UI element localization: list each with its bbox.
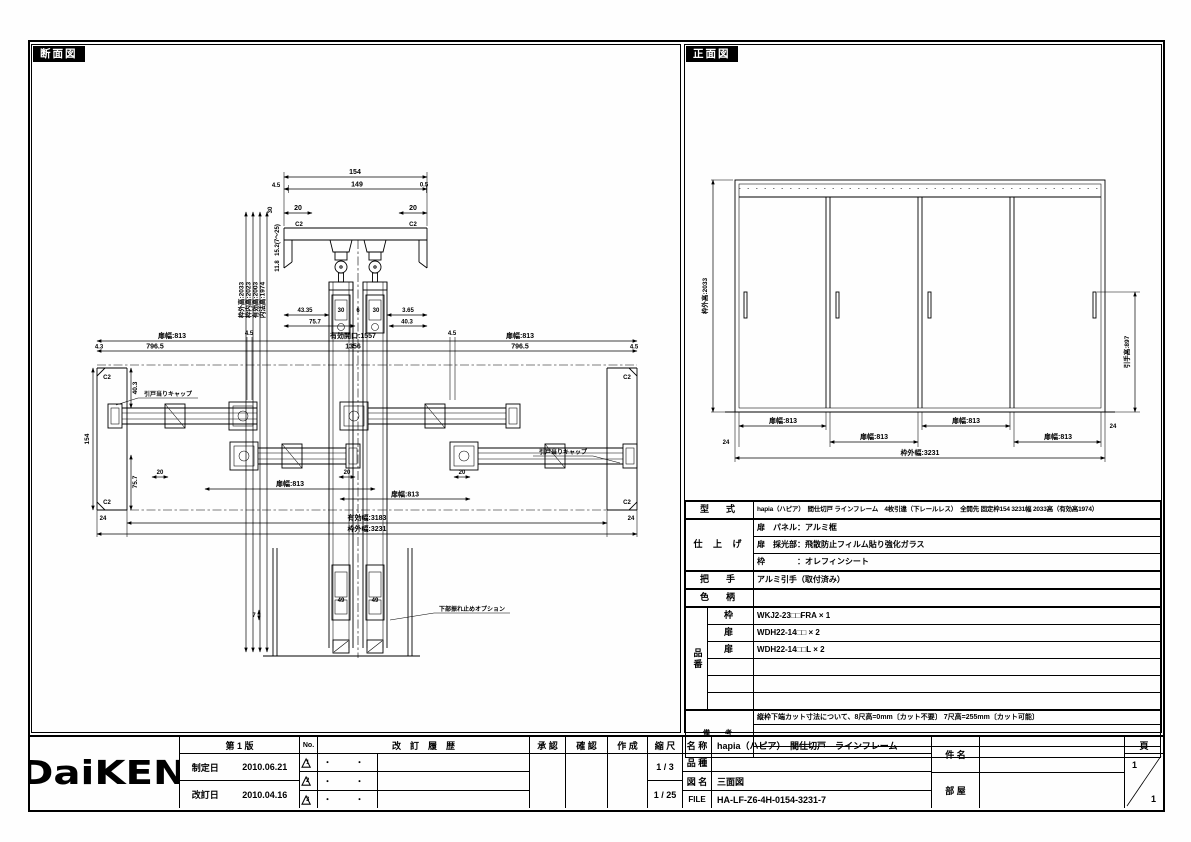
drawing-name-label: 図 名 bbox=[683, 772, 712, 791]
dim-gap: 4.5 bbox=[448, 331, 457, 337]
revision-triangle-icon: 1 bbox=[302, 757, 316, 769]
product-name: hapia（ハピア） 間仕切戸 ラインフレーム bbox=[712, 737, 932, 754]
revision-triangle-icon: 2 bbox=[302, 775, 316, 787]
check-header: 確 認 bbox=[566, 737, 608, 754]
spec-part-code: WDH22-14□□ × 2 bbox=[754, 625, 1161, 642]
dim-30: 30 bbox=[268, 206, 274, 213]
dim-door-width: 扉幅:813 bbox=[768, 416, 797, 425]
drawing-name-value: 三面図 bbox=[712, 772, 932, 791]
revision-date: ・ ・ bbox=[318, 791, 378, 808]
head-jamb-profile bbox=[284, 228, 427, 268]
spec-part-code bbox=[754, 693, 1161, 711]
revision-triangle-icon: 3 bbox=[302, 794, 316, 806]
page-cell: 1 1 bbox=[1125, 754, 1163, 808]
dim-door-width: 扉幅:813 bbox=[1043, 432, 1072, 441]
dim-jamb-40-3: 40.3 bbox=[132, 381, 139, 394]
dim-frame-inner-height: 枠内高:2023 bbox=[244, 282, 253, 319]
front-dimensions: 枠外高:2033 引手高:897 扉幅:813 扉幅:813 24 24 扉幅:… bbox=[700, 180, 1140, 462]
dim-11-8: 11.8 bbox=[275, 260, 281, 272]
dim-door-width: 扉幅:813 bbox=[390, 490, 419, 499]
dim-24: 24 bbox=[723, 440, 730, 446]
spec-part-code: WKJ2-23□□FRA × 1 bbox=[754, 607, 1161, 625]
dim-door-width: 扉幅:813 bbox=[951, 416, 980, 425]
dim-7: 7 bbox=[252, 613, 256, 619]
head-lower-dimensions: 43.35 30 6 30 3.65 75.7 40.3 bbox=[284, 308, 427, 326]
spec-note bbox=[754, 725, 1161, 736]
dim-40-3: 40.3 bbox=[401, 320, 413, 326]
established-date: 2010.06.21 bbox=[242, 762, 287, 772]
bottom-guide-option-label: 下部振れ止めオプション bbox=[439, 605, 505, 613]
revised-date: 2010.04.16 bbox=[242, 790, 287, 800]
spec-model-value: hapia（ハピア） 間仕切戸 ラインフレーム 4枚引違（下レールレス） 全開先… bbox=[754, 501, 1161, 519]
dim-door-width: 扉幅:813 bbox=[157, 331, 186, 340]
drawing-sheet: 断面図 正面図 枠外高:2033 枠内高:2023 有効高:2003 内法高:1… bbox=[0, 0, 1191, 842]
spec-part-name bbox=[708, 659, 754, 676]
dim-effective-height: 有効高:2003 bbox=[251, 282, 260, 319]
dim-frame-outer-height: 枠外高:2033 bbox=[700, 278, 709, 315]
revision-history-header: 改 訂 履 歴 bbox=[318, 737, 530, 754]
established-row: 制定日 2010.06.21 bbox=[180, 754, 300, 781]
dim-frame-width: 枠外幅:3231 bbox=[348, 524, 387, 533]
spec-part-name: 扉 bbox=[708, 642, 754, 659]
page-header: 頁 bbox=[1125, 737, 1163, 754]
spec-part-name bbox=[708, 676, 754, 693]
approval-stamp-cell bbox=[530, 754, 566, 808]
dim-door-width: 扉幅:813 bbox=[859, 432, 888, 441]
chamfer-label-c2: C2 bbox=[409, 222, 417, 228]
page-number: 1 bbox=[1132, 760, 1137, 770]
dim-30b: 30 bbox=[373, 308, 380, 314]
door-handle bbox=[744, 292, 747, 318]
dim-24: 24 bbox=[1110, 424, 1117, 430]
dim-mid-width: 1356 bbox=[345, 344, 361, 351]
check-stamp-cell bbox=[566, 754, 608, 808]
project-label: 件 名 bbox=[932, 737, 980, 773]
dim-43-35: 43.35 bbox=[297, 308, 313, 314]
dim-frame-outer-height: 枠外高:2033 bbox=[237, 282, 246, 319]
spec-model-label: 型 式 bbox=[686, 501, 754, 519]
dim-door-width: 扉幅:813 bbox=[505, 331, 534, 340]
chamfer-label-c2: C2 bbox=[623, 500, 631, 506]
file-label: FILE bbox=[683, 791, 712, 808]
revision-no-header: No. bbox=[300, 737, 318, 754]
overall-height-dimensions: 枠外高:2033 枠内高:2023 有効高:2003 内法高:1974 30 1… bbox=[237, 206, 282, 652]
scale-value-1: 1 / 3 bbox=[648, 754, 683, 781]
spec-finish-door-glass: 扉 採光部：飛散防止フィルム貼り強化ガラス bbox=[754, 537, 1161, 554]
name-label: 名 称 bbox=[683, 737, 712, 754]
dim-effective-width: 有効幅:3183 bbox=[348, 513, 387, 522]
revision-desc bbox=[378, 772, 530, 791]
plan-view-body: C2 C2 C2 C2 154 40.3 75.7 bbox=[84, 365, 637, 510]
chamfer-label-c2: C2 bbox=[103, 375, 111, 381]
door-handles bbox=[744, 292, 1096, 318]
dim-edge: 4.3 bbox=[95, 345, 104, 351]
spec-finish-label: 仕 上 げ bbox=[686, 519, 754, 571]
page-diagonal bbox=[1125, 754, 1163, 808]
dim-gap: 4.5 bbox=[245, 331, 254, 337]
dim-head-left: 4.5 bbox=[272, 183, 281, 189]
dim-head-right: 0.5 bbox=[420, 183, 429, 189]
spec-finish-door-panel: 扉 パネル：アルミ框 bbox=[754, 519, 1161, 537]
dim-door-width: 扉幅:813 bbox=[275, 479, 304, 488]
dim-20-left: 20 bbox=[294, 205, 302, 212]
spec-part-name: 枠 bbox=[708, 607, 754, 625]
dim-adjust-range: 15.2(7〜25) bbox=[275, 224, 281, 256]
spec-part-name bbox=[708, 693, 754, 711]
revision-date: ・ ・ bbox=[318, 772, 378, 791]
dim-3-65: 3.65 bbox=[402, 308, 414, 314]
door-handle bbox=[928, 292, 931, 318]
company-logo: DaiKEN bbox=[28, 737, 180, 808]
dim-gap: 4.5 bbox=[630, 345, 639, 351]
dim-20: 20 bbox=[157, 470, 164, 476]
edition-label: 第 1 版 bbox=[180, 737, 300, 754]
spec-part-code bbox=[754, 659, 1161, 676]
scale-header: 縮 尺 bbox=[648, 737, 683, 754]
create-header: 作 成 bbox=[608, 737, 648, 754]
dim-half: 796.5 bbox=[146, 344, 164, 351]
chamfer-label-c2: C2 bbox=[103, 500, 111, 506]
spec-note: 縦枠下端カット寸法について、8尺高=0mm〔カット不要〕 7尺高=255mm〔カ… bbox=[754, 710, 1161, 725]
dim-75-7: 75.7 bbox=[309, 320, 321, 326]
dim-30a: 30 bbox=[338, 308, 345, 314]
chamfer-label-c2: C2 bbox=[295, 222, 303, 228]
revised-row: 改訂日 2010.04.16 bbox=[180, 781, 300, 808]
door-stopper-cap-label: 引戸当りキャップ bbox=[144, 390, 193, 398]
scale-value-2: 1 / 25 bbox=[648, 781, 683, 808]
dim-effective-opening: 有効開口:1557 bbox=[330, 331, 376, 340]
dim-49: 49 bbox=[338, 598, 345, 604]
spec-parts-label: 品番 bbox=[686, 607, 708, 710]
spec-part-code bbox=[754, 676, 1161, 693]
dim-clear-height: 内法高:1974 bbox=[258, 282, 267, 319]
door-handle bbox=[1093, 292, 1096, 318]
dim-handle-height: 引手高:897 bbox=[1122, 335, 1131, 368]
kind-value bbox=[712, 754, 932, 772]
kind-label: 品 種 bbox=[683, 754, 712, 772]
spec-color-value bbox=[754, 589, 1161, 607]
established-label: 制定日 bbox=[192, 761, 219, 774]
floor-detail: 49 49 7 下部振れ止めオプション bbox=[252, 548, 510, 656]
dim-24: 24 bbox=[100, 516, 107, 522]
specification-table: 型 式 hapia（ハピア） 間仕切戸 ラインフレーム 4枚引違（下レールレス）… bbox=[685, 500, 1161, 758]
dim-20: 20 bbox=[344, 470, 351, 476]
dim-half: 796.5 bbox=[511, 344, 529, 351]
dim-jamb-75-7: 75.7 bbox=[132, 475, 139, 488]
file-value: HA-LF-Z6-4H-0154-3231-7 bbox=[712, 791, 932, 808]
spec-finish-frame: 枠 ：オレフィンシート bbox=[754, 554, 1161, 572]
dim-6: 6 bbox=[356, 308, 360, 314]
revised-label: 改訂日 bbox=[192, 788, 219, 801]
dim-head-total: 154 bbox=[349, 169, 361, 176]
dim-24: 24 bbox=[628, 516, 635, 522]
dim-jamb-depth: 154 bbox=[84, 433, 91, 444]
section-drawing: 枠外高:2033 枠内高:2023 有効高:2003 内法高:1974 30 1… bbox=[28, 40, 682, 733]
revision-date: ・ ・ bbox=[318, 754, 378, 772]
revision-mark-cell: 2 bbox=[300, 772, 318, 791]
room-label: 部 屋 bbox=[932, 773, 980, 808]
project-value bbox=[980, 737, 1125, 773]
dim-frame-width: 枠外幅:3231 bbox=[901, 448, 940, 457]
door-stopper-cap-label: 引戸当りキャップ bbox=[539, 448, 588, 456]
spec-handle-value: アルミ引手（取付済み） bbox=[754, 571, 1161, 589]
spec-part-code: WDH22-14□□L × 2 bbox=[754, 642, 1161, 659]
revision-mark-cell: 1 bbox=[300, 754, 318, 772]
plan-doors-upper-lane bbox=[108, 402, 520, 430]
page-total: 1 bbox=[1151, 794, 1156, 804]
dim-20: 20 bbox=[459, 470, 466, 476]
revision-desc bbox=[378, 791, 530, 808]
spec-handle-label: 把 手 bbox=[686, 571, 754, 589]
door-section-rails bbox=[329, 240, 387, 658]
daiken-logo: DaiKEN bbox=[28, 753, 180, 792]
dim-20-right: 20 bbox=[409, 205, 417, 212]
approval-header: 承 認 bbox=[530, 737, 566, 754]
title-block: DaiKEN 第 1 版 制定日 2010.06.21 改訂日 2010.04.… bbox=[28, 735, 1163, 810]
door-handle bbox=[836, 292, 839, 318]
front-frame bbox=[725, 180, 1115, 412]
dim-head-mid: 149 bbox=[351, 182, 363, 189]
room-value bbox=[980, 773, 1125, 808]
spec-color-label: 色 柄 bbox=[686, 589, 754, 607]
revision-mark-cell: 3 bbox=[300, 791, 318, 808]
head-detail-dimensions: 154 4.5 149 0.5 20 20 C2 C2 bbox=[272, 169, 429, 228]
chamfer-label-c2: C2 bbox=[623, 375, 631, 381]
create-stamp-cell bbox=[608, 754, 648, 808]
spec-part-name: 扉 bbox=[708, 625, 754, 642]
dim-49: 49 bbox=[372, 598, 379, 604]
front-drawing: 枠外高:2033 引手高:897 扉幅:813 扉幅:813 24 24 扉幅:… bbox=[684, 40, 1163, 500]
revision-desc bbox=[378, 754, 530, 772]
